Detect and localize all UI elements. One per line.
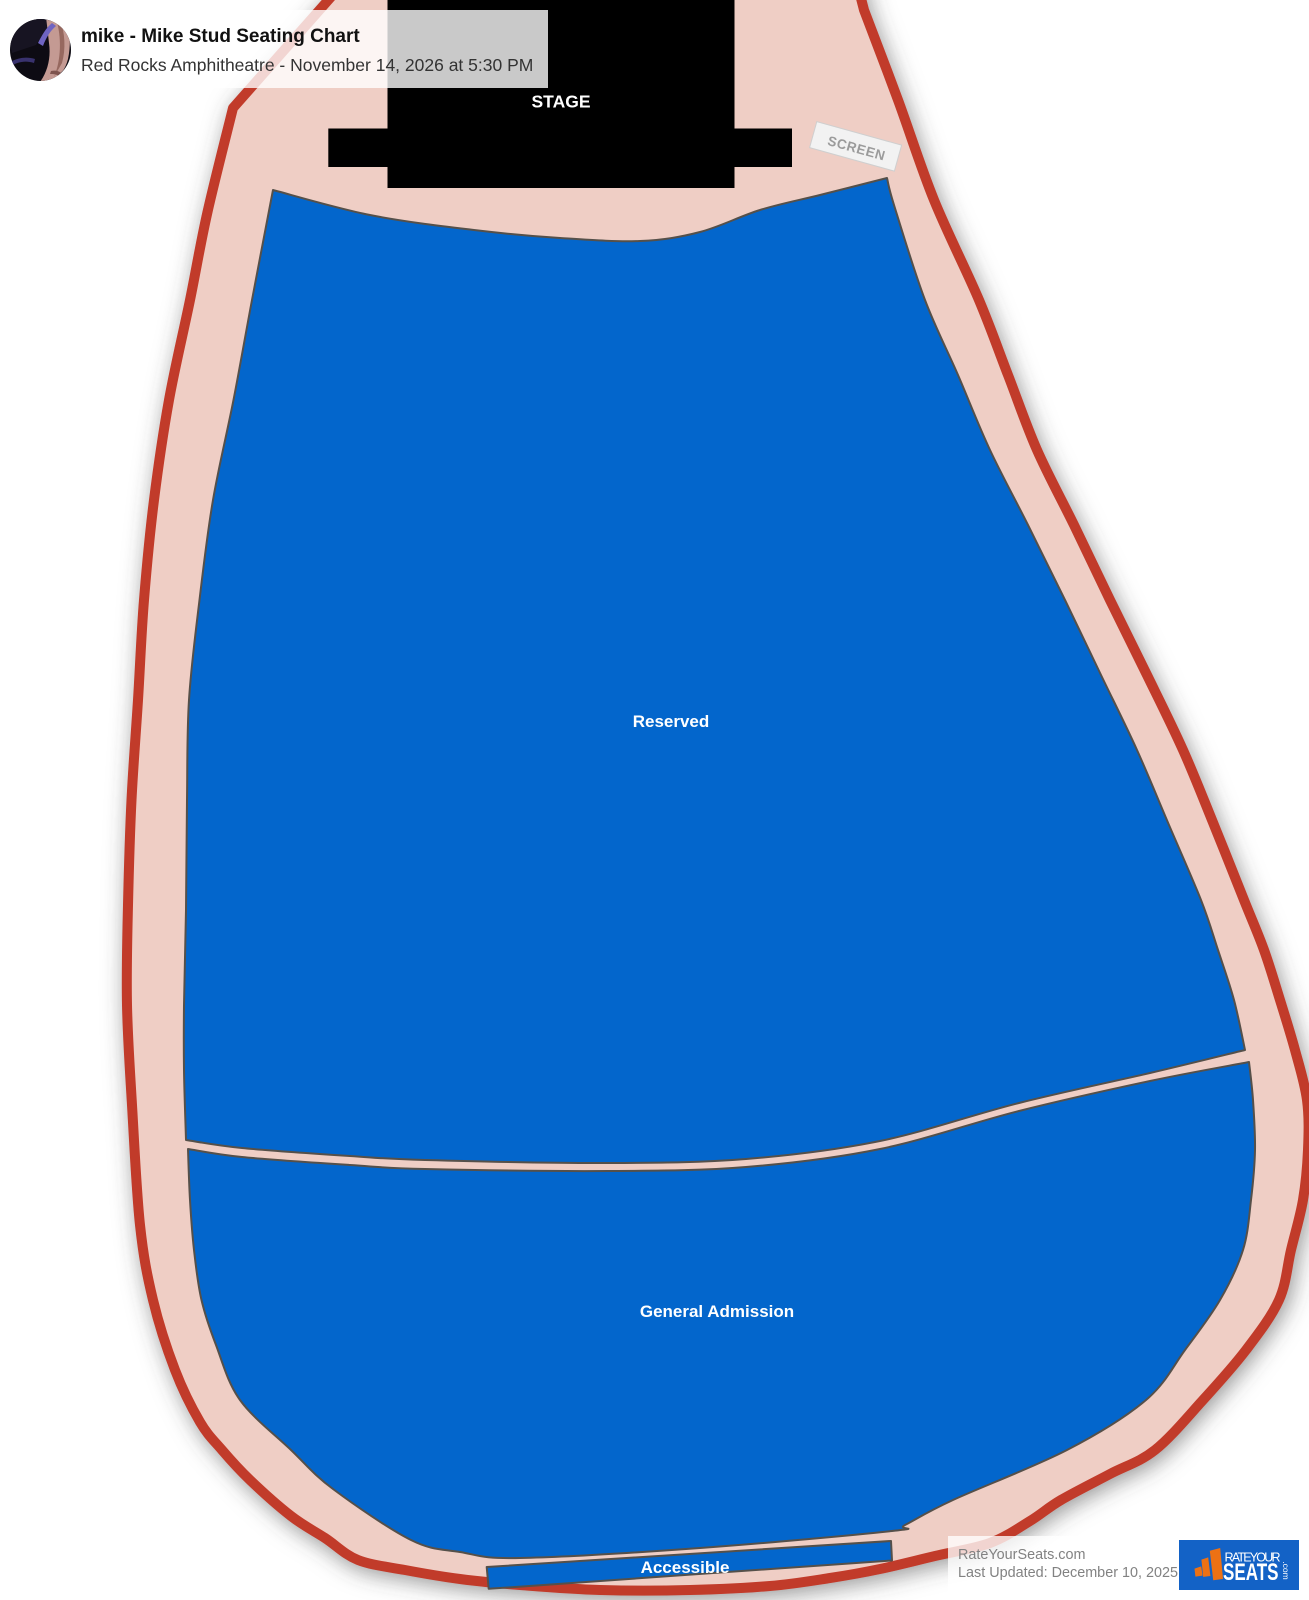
svg-text:STAGE: STAGE (532, 92, 591, 112)
svg-text:SEATS: SEATS (1223, 1559, 1279, 1586)
svg-text:Reserved: Reserved (633, 712, 710, 731)
svg-text:.com: .com (1281, 1561, 1291, 1579)
svg-text:General Admission: General Admission (640, 1302, 794, 1321)
svg-text:Accessible: Accessible (641, 1558, 730, 1577)
